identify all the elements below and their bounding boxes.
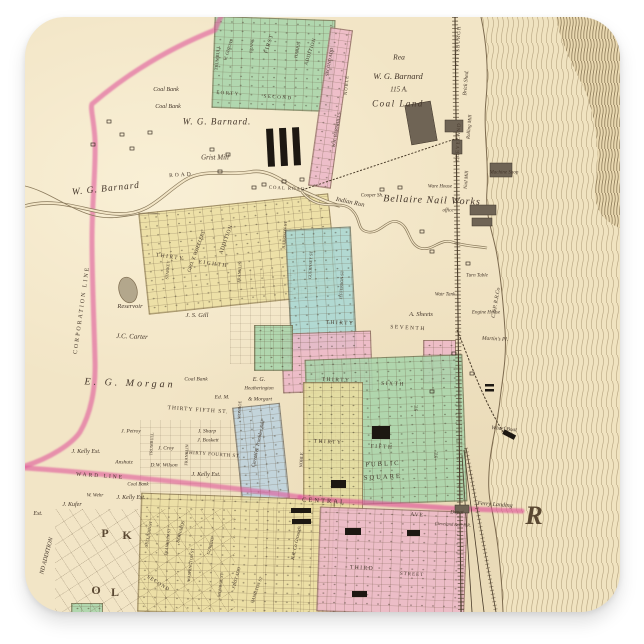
map-label: THIRTY [313, 439, 342, 446]
map-label: W. G. Barnard [72, 182, 141, 199]
map-label: SECOND [263, 94, 292, 101]
map-label: Rolling Mill [466, 115, 473, 140]
map-label: FIFTH [370, 445, 393, 452]
map-label: Coal Bank [184, 377, 207, 383]
map-label: ADDITION [304, 38, 318, 67]
map-label: ND ADDITION [39, 537, 55, 575]
product-page: W. G. Barnard.Coal BankCoal BankGrist Mi… [0, 0, 644, 644]
map-label: Rea [393, 53, 405, 61]
map-label: WARD LINE [76, 473, 124, 482]
map-label: THIRD [350, 566, 375, 573]
map-label: R [525, 503, 542, 529]
map-label: HARRISON ST [282, 221, 289, 249]
map-labels: W. G. Barnard.Coal BankCoal BankGrist Mi… [25, 17, 620, 612]
map-label: COAL ROAD [269, 187, 306, 194]
map-label: FIRST ADD [232, 567, 242, 589]
map-label: office [442, 209, 453, 214]
map-label: FRANKLIN [184, 444, 189, 465]
map-label: GEO. T. WHEELERS [187, 231, 206, 273]
map-label: E. G. Morgan [84, 377, 175, 390]
map-label: WASHINGTON ST [187, 548, 195, 582]
map-label: COWANS [207, 537, 216, 555]
map-label: W. G. Barnard. [183, 118, 252, 127]
map-label: Watr Tank [435, 293, 455, 298]
map-label: TRUMBULL [215, 45, 222, 70]
map-label: JEFFERSON ST [339, 271, 345, 300]
map-label: K [122, 529, 131, 541]
map-label: FORTY [216, 91, 240, 98]
map-label: Ferry Landing [477, 501, 513, 509]
map-label: GUERNSEY ST [308, 251, 314, 279]
map-label: W. GHIONS [223, 39, 234, 61]
map-label: EIGHTH [198, 260, 228, 270]
map-label: Depot [450, 510, 463, 516]
map-label: J.C. Carter [116, 333, 148, 341]
map-label: FRANK [249, 39, 254, 54]
map-label: L [111, 586, 119, 598]
map-label: J. S. Gill [186, 313, 209, 320]
map-label: AVE [410, 513, 424, 519]
map-label: Coal Bank [153, 87, 179, 93]
map-label: MONROE [237, 401, 242, 419]
map-label: W. G. Barnard [373, 72, 422, 81]
map-label: CLEVELAND [455, 122, 462, 161]
map-label: O [91, 584, 100, 596]
map-label: Cleveland & P. R.R. [435, 522, 471, 528]
map-label: TRUMBULL [149, 432, 154, 455]
map-label: J. Boskett [197, 438, 218, 444]
map-sticker: W. G. Barnard.Coal BankCoal BankGrist Mi… [25, 17, 620, 612]
map-label: J. Kelly Est. [117, 495, 146, 501]
map-label: J. Kelly Est. [192, 472, 221, 478]
map-label: Indian Run [335, 197, 365, 209]
map-label: MONROE ST [217, 573, 224, 597]
map-label: Ed. M. [215, 395, 230, 401]
map-label: D.W. Wilson [150, 463, 177, 469]
map-label: J. Croy [158, 446, 174, 452]
map-label: ST. [434, 451, 440, 458]
map-label: ADDITION [219, 225, 235, 256]
map-label: Brick Shed. [463, 70, 471, 96]
map-label: SQUARE [364, 474, 402, 482]
map-label: Anshutz [115, 460, 132, 466]
map-label: SULLIVAN ST [145, 521, 154, 548]
map-label: ST. [414, 405, 419, 412]
map-label: NOBLE [299, 452, 304, 467]
map-label: THIRTY FOURTH ST. [185, 451, 240, 460]
map-label: A. Sheets [409, 312, 433, 319]
map-label: Carroll & Trimbles Add [252, 420, 267, 468]
map-label: FRANKLIN [237, 261, 243, 282]
map-label: THIRTY [325, 321, 354, 328]
map-label: Coal Bank [127, 483, 148, 488]
map-label: Coal Bank [155, 104, 181, 110]
map-label: Turn Table [466, 274, 488, 279]
map-label: SECOND ADD [325, 48, 334, 77]
map-label: SIXTH [381, 382, 405, 388]
map-label: Reservoir [117, 304, 142, 311]
map-label: W.H. BARNHILLS [332, 112, 343, 148]
map-label: ROAD [169, 172, 193, 179]
map-label: Cooper Sh. [361, 194, 384, 199]
map-label: J. Kelly Est. [72, 449, 101, 455]
map-label: CORPORATION LINE [73, 265, 91, 354]
map-label: Nail Mill [464, 171, 471, 190]
map-label: E. G. [253, 377, 266, 383]
map-label: STREET [400, 572, 425, 578]
map-label: J. Sharp [198, 429, 216, 435]
map-label: Wharf Boat [491, 426, 517, 434]
map-label: C.&P. R.R.Co [492, 287, 503, 318]
map-label: NOBLE [344, 75, 350, 95]
map-label: & Morgart [248, 397, 272, 403]
map-label: HARRIS [294, 41, 302, 58]
map-label: R.R. Co Grounds [291, 526, 303, 561]
map-label: J. Kufer [62, 502, 81, 508]
map-label: Ware House [428, 185, 452, 190]
map-label: J. Petroy [121, 429, 141, 435]
map-label: Heatherington [244, 387, 273, 392]
map-label: W. Wehr [87, 494, 104, 499]
map-label: CENTRAL [302, 498, 346, 507]
map-label: P [101, 527, 108, 539]
map-label: Grist Mill [201, 155, 229, 162]
map-label: SECOND [146, 575, 171, 593]
map-label: THIRTY FIFTH ST. [167, 406, 228, 416]
map-label: BERNARDS [176, 521, 186, 544]
map-label: STARKEY [165, 260, 171, 279]
map-label: FRANKLIN ST [164, 528, 171, 555]
map-label: SEVENTH [390, 325, 426, 332]
map-label: PITTSBURGH [455, 25, 462, 66]
map-label: Est. [33, 511, 42, 517]
map-label: PUBLIC [365, 461, 400, 469]
map-label: HAMILTON ST [250, 576, 263, 604]
map-label: Machine Shop [490, 171, 519, 176]
map-label: FIRST [264, 34, 275, 55]
map-label: Martin's Pl. [482, 337, 508, 344]
map-label: Bellaire Nail Works [383, 194, 481, 207]
map-label: Coal Land [372, 100, 424, 109]
map-label: 115 A. [390, 87, 408, 94]
map-label: THIRTY [321, 378, 350, 385]
